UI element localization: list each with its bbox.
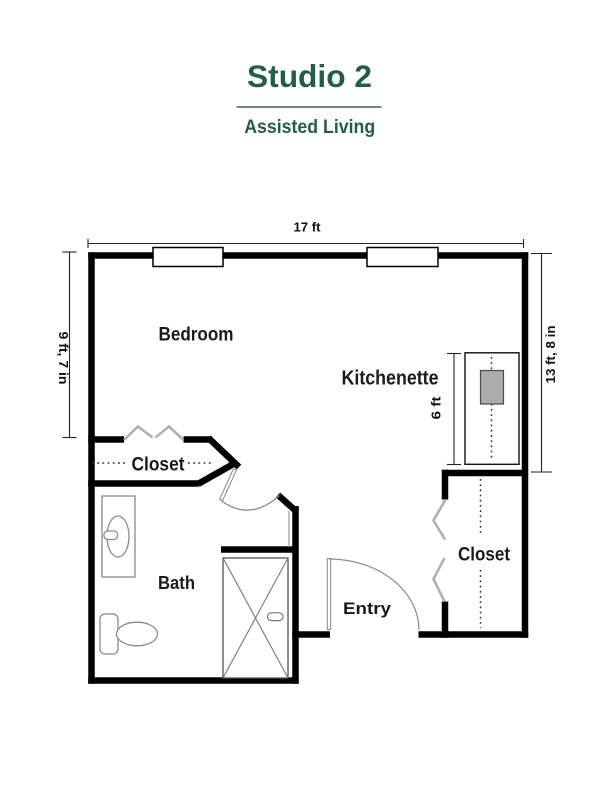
svg-text:9 ft, 7 in: 9 ft, 7 in	[56, 332, 70, 385]
svg-text:Kitchenette: Kitchenette	[342, 368, 439, 390]
svg-text:6 ft: 6 ft	[429, 396, 444, 420]
svg-text:Entry: Entry	[343, 599, 392, 618]
svg-text:Bedroom: Bedroom	[159, 325, 234, 346]
svg-text:Studio 2: Studio 2	[247, 58, 372, 94]
svg-text:Closet: Closet	[458, 545, 511, 566]
svg-text:13 ft, 8 in: 13 ft, 8 in	[544, 326, 558, 384]
svg-text:Assisted Living: Assisted Living	[244, 116, 375, 138]
svg-text:Bath: Bath	[158, 573, 195, 593]
svg-text:17 ft: 17 ft	[293, 220, 321, 235]
svg-text:Closet: Closet	[132, 455, 186, 476]
